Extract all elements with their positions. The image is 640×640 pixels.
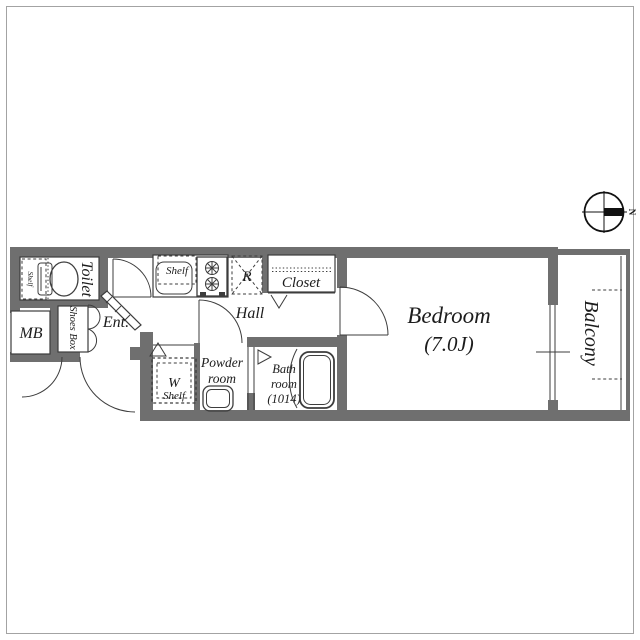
wall [548, 400, 558, 411]
wall [194, 343, 200, 411]
wall [626, 249, 630, 421]
bath-room-label-3: (1014) [267, 392, 300, 406]
closet-label: Closet [282, 275, 321, 291]
balcony-label: Balcony [580, 300, 602, 366]
wall [558, 249, 626, 255]
bedroom-size-label: (7.0J) [424, 332, 474, 356]
toilet-label: Toilet [78, 261, 95, 297]
wall [247, 337, 347, 347]
powder-room-label-2: room [208, 371, 236, 386]
shoes-box-label: Shoes Box [67, 306, 78, 350]
entrance-label: Ent. [102, 314, 129, 331]
wall [262, 255, 268, 293]
wall [10, 247, 20, 313]
compass-north-bar [604, 208, 624, 216]
washer-label: W [168, 376, 181, 391]
powder-room-label-1: Powder [200, 355, 244, 370]
floor-plan-svg: Shelf Toilet MB Shoes Box Ent. [0, 0, 640, 640]
hall-label: Hall [235, 305, 265, 322]
refrigerator-label: R [241, 269, 251, 285]
floor-plan-image: Shelf Toilet MB Shoes Box Ent. [0, 0, 640, 640]
wall [140, 332, 153, 412]
mb-label: MB [18, 325, 42, 342]
wall [548, 258, 558, 305]
toilet-shelf-label: Shelf [26, 272, 35, 288]
wall [337, 257, 347, 288]
bath-room-label-2: room [271, 377, 297, 391]
compass-north-label: N [627, 209, 637, 216]
wall [50, 306, 58, 356]
kitchen-shelf-label: Shelf [166, 265, 190, 277]
compass-icon: N [582, 191, 637, 233]
washer-shelf-label: Shelf [163, 390, 187, 402]
bath-room-label-1: Bath [272, 362, 296, 376]
bedroom-label: Bedroom [407, 303, 490, 328]
